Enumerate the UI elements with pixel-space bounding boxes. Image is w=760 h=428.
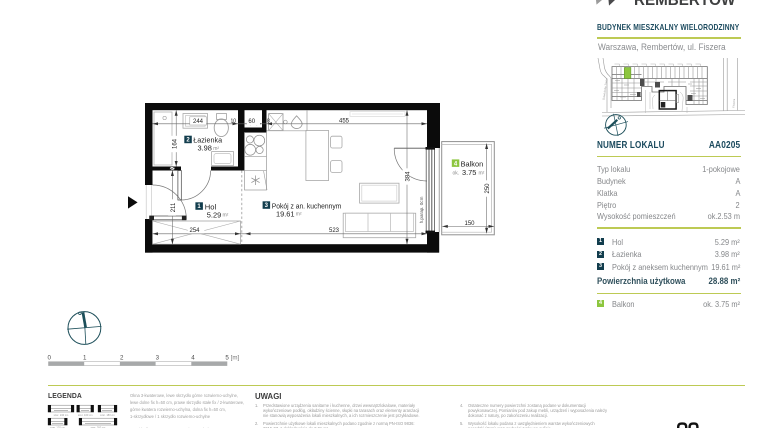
svg-text:szer. 240 cm: szer. 240 cm: [54, 413, 69, 417]
svg-text:5.29: 5.29: [207, 210, 221, 219]
svg-text:0: 0: [48, 355, 52, 362]
svg-text:523: 523: [329, 228, 340, 234]
svg-text:384: 384: [405, 171, 411, 182]
svg-text:m²: m²: [479, 170, 485, 176]
svg-text:10: 10: [231, 119, 237, 125]
svg-text:m²: m²: [213, 146, 219, 152]
svg-text:455: 455: [339, 118, 350, 124]
svg-text:3.98: 3.98: [198, 144, 212, 153]
svg-text:m²: m²: [223, 213, 229, 219]
svg-text:szer. 180 cm: szer. 180 cm: [100, 413, 115, 417]
svg-text:[m]: [m]: [231, 355, 240, 362]
svg-text:19.61: 19.61: [276, 209, 295, 218]
svg-text:8: 8: [267, 119, 270, 125]
svg-text:244: 244: [193, 119, 204, 125]
svg-text:250: 250: [485, 183, 491, 194]
svg-text:164: 164: [172, 138, 178, 149]
svg-text:m²: m²: [296, 212, 302, 218]
svg-text:211: 211: [171, 202, 177, 212]
svg-text:Fiszera: Fiszera: [732, 98, 736, 108]
svg-text:h.parap. 0cm: h.parap. 0cm: [419, 196, 424, 223]
svg-text:Dowódców 7/wos: Dowódców 7/wos: [602, 77, 609, 100]
svg-text:5: 5: [225, 355, 229, 362]
svg-text:150: 150: [465, 221, 476, 227]
svg-text:4: 4: [191, 355, 195, 362]
svg-text:3.75: 3.75: [462, 168, 476, 177]
svg-text:ok.: ok.: [453, 170, 460, 176]
svg-text:3: 3: [156, 355, 160, 362]
svg-text:254: 254: [190, 228, 201, 234]
svg-text:Balkon: Balkon: [461, 159, 484, 168]
svg-text:szer. 160 cm: szer. 160 cm: [78, 413, 93, 417]
svg-text:1: 1: [83, 355, 87, 362]
svg-text:60: 60: [248, 119, 255, 125]
svg-text:2: 2: [120, 355, 124, 362]
